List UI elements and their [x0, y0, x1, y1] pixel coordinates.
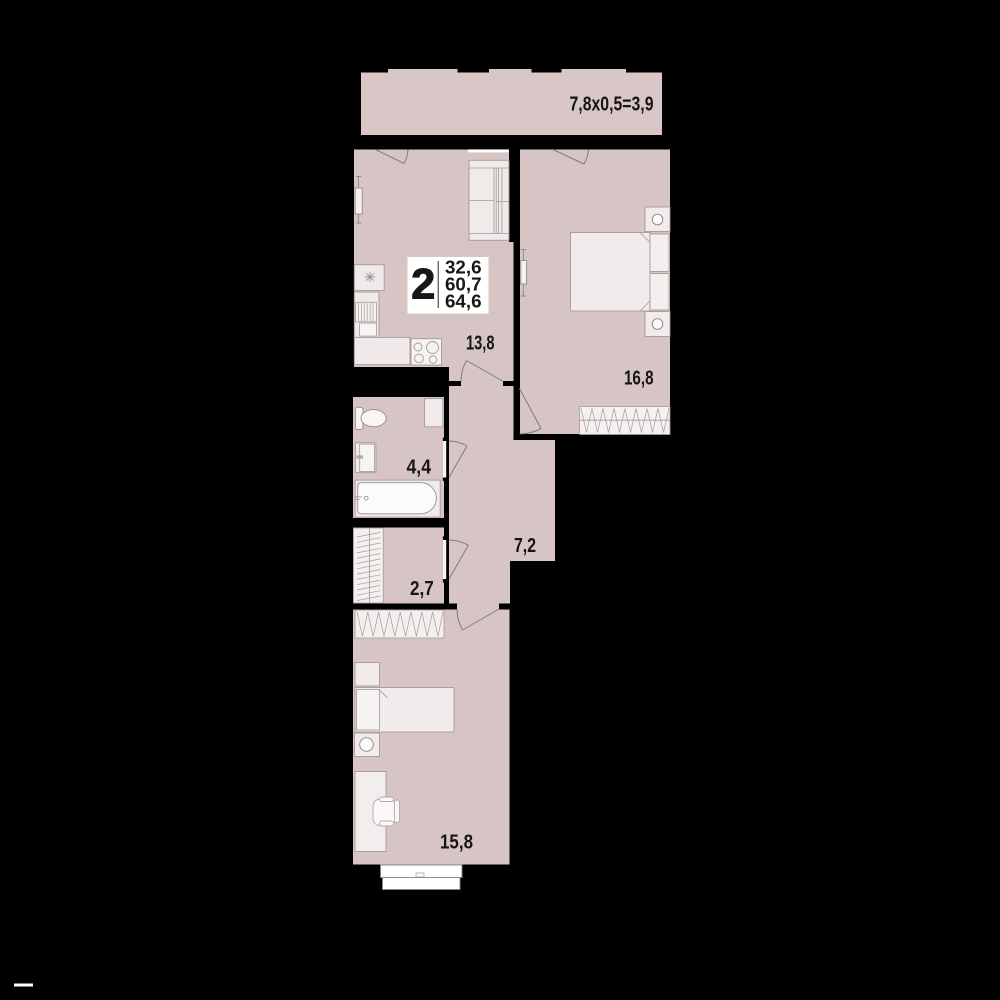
svg-text:16,8: 16,8 [624, 368, 654, 390]
svg-text:2,7: 2,7 [410, 578, 434, 600]
svg-text:2: 2 [411, 262, 435, 309]
svg-text:7,8x0,5=3,9: 7,8x0,5=3,9 [570, 94, 654, 116]
svg-text:4,4: 4,4 [407, 457, 432, 479]
svg-text:15,8: 15,8 [440, 832, 473, 854]
svg-text:13,8: 13,8 [466, 333, 495, 355]
svg-text:64,6: 64,6 [445, 291, 482, 312]
svg-text:7,2: 7,2 [514, 535, 536, 557]
